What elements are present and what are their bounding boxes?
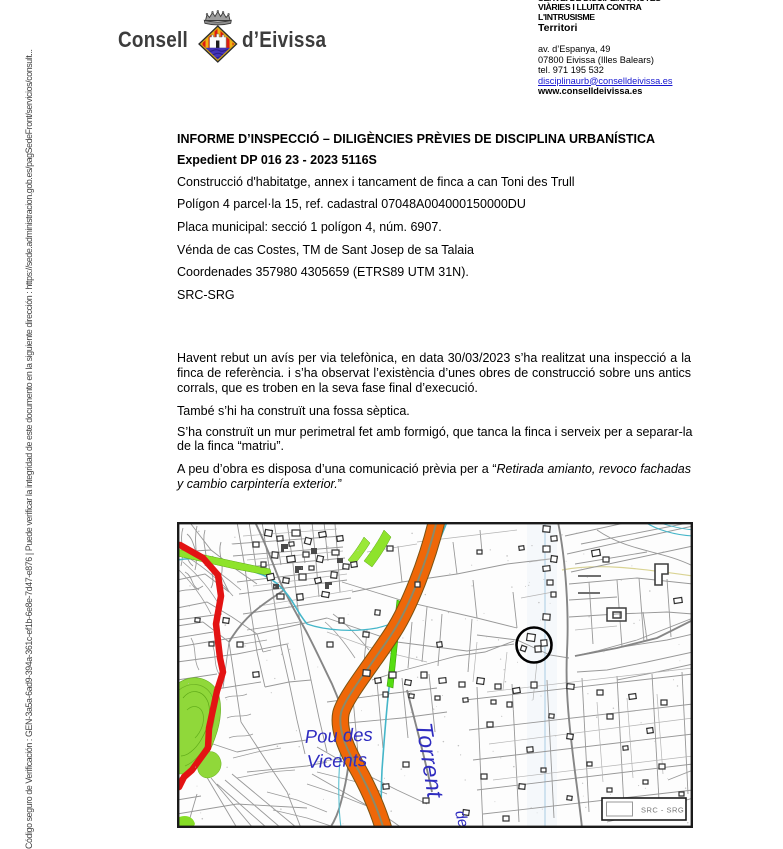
svg-text:Vicents: Vicents — [306, 749, 367, 772]
svg-text:Pou des: Pou des — [304, 724, 373, 747]
svg-text:SRC - SRG: SRC - SRG — [641, 806, 684, 815]
